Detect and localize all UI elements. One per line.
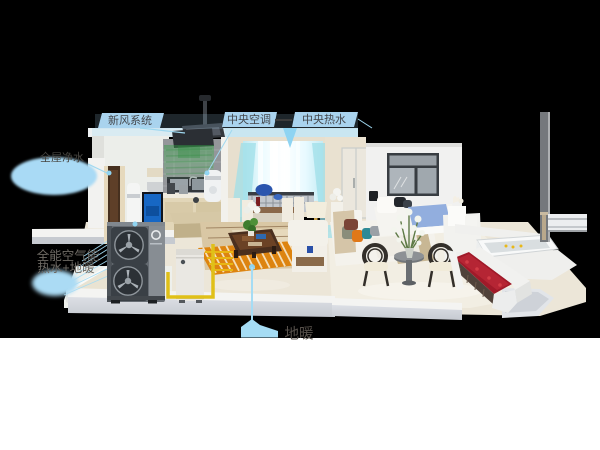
svg-text:地暖: 地暖 (285, 326, 314, 343)
svg-text:中央空调: 中央空调 (227, 112, 271, 126)
svg-text:中央热水: 中央热水 (302, 113, 346, 126)
svg-text:热水+地暖: 热水+地暖 (37, 261, 95, 275)
svg-text:新风系统: 新风系统 (108, 113, 152, 127)
svg-text:全屋净水: 全屋净水 (40, 150, 84, 164)
